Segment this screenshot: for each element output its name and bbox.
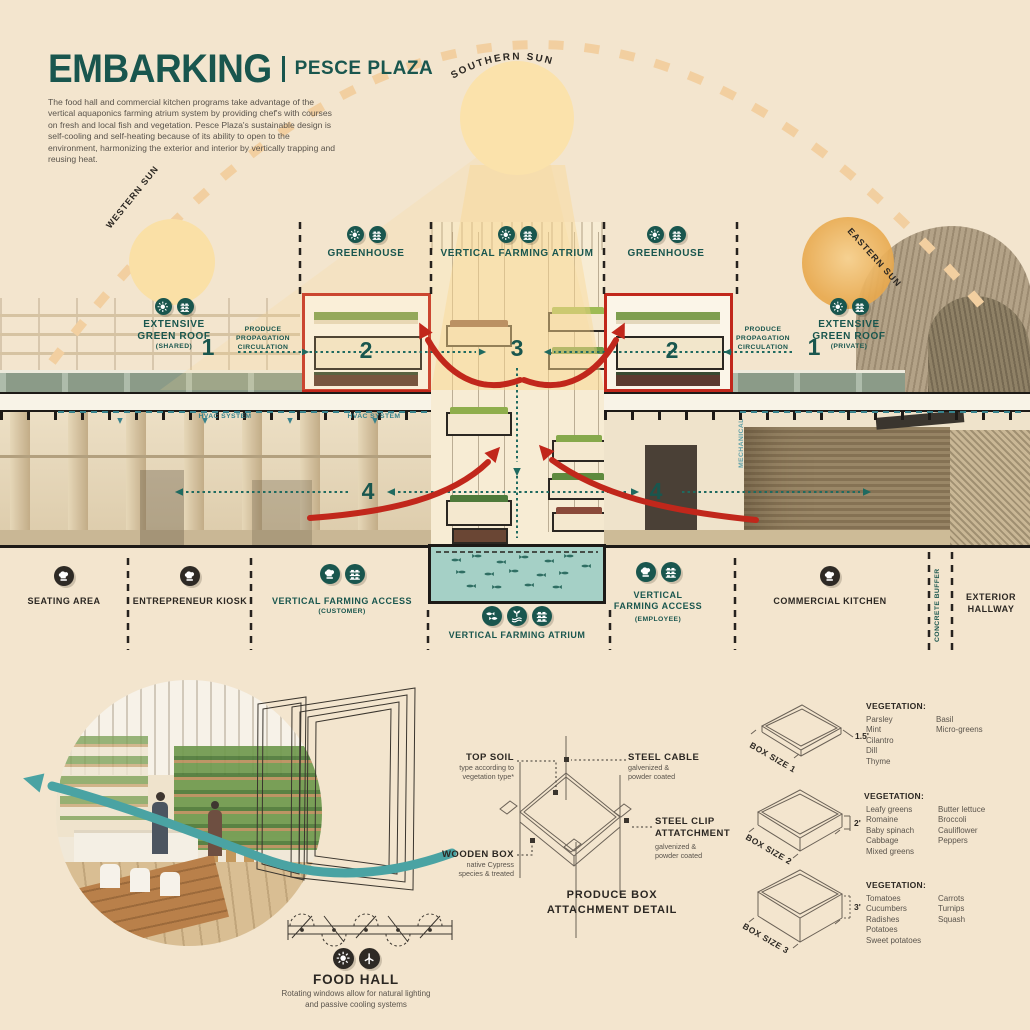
list-item: Basil (936, 715, 983, 725)
list-item: Butter lettuce (938, 805, 985, 815)
box-size-3-col2: CarrotsTurnipsSquash (938, 894, 965, 925)
western-sun-label: WESTERN SUN (104, 164, 161, 231)
list-item: Tomatoes (866, 894, 921, 904)
ground-line-right (602, 545, 1030, 548)
photo-person (208, 810, 222, 856)
page-subtitle: PESCE PLAZA (295, 58, 434, 80)
box-size-1-heading: VEGETATION: (866, 701, 926, 711)
list-item: Turnips (938, 904, 965, 914)
produce-box (446, 500, 512, 526)
page-title: EMBARKING (48, 46, 272, 91)
detail-steel-cable: STEEL CABLE galvenized & powder coated (628, 752, 738, 782)
greenhouse-tray (314, 372, 418, 386)
detail-top-soil: TOP SOIL type according to vegetation ty… (414, 752, 514, 782)
fish-icon (482, 606, 502, 626)
detail-caption: PRODUCE BOX ATTACHMENT DETAIL (547, 888, 677, 918)
photo-person-head (211, 801, 219, 809)
southern-sun-label: SOUTHERN SUN (449, 51, 555, 81)
list-item: Cilantro (866, 736, 894, 746)
callout-1-left: 1 (202, 334, 215, 361)
roof-slab-left (0, 392, 431, 412)
title-divider (282, 56, 285, 82)
produce-box (548, 312, 608, 332)
plants (450, 320, 508, 327)
detail-leader-dots (530, 757, 629, 843)
produce-box (452, 528, 508, 544)
box-size-1-col1: ParsleyMintCilantroDillThyme (866, 715, 894, 767)
box-size-2-dimension: 2' (854, 818, 861, 828)
photo-left-shelves (60, 736, 148, 820)
list-item: Squash (938, 915, 965, 925)
wood-slat-wall (744, 427, 950, 545)
box-size-2-heading: VEGETATION: (864, 791, 924, 801)
photo-person (152, 802, 168, 854)
green-roof-icons-right (819, 298, 879, 315)
sun-plant-icon (498, 226, 515, 243)
southern-sun (460, 61, 574, 175)
detail-wooden-box-title: WOODEN BOX (404, 849, 514, 860)
list-item: Sweet potatoes (866, 936, 921, 946)
list-item: Cauliflower (938, 826, 985, 836)
mezzanine-line (0, 455, 431, 458)
column (184, 408, 204, 545)
employee-access-icons (634, 562, 682, 582)
callout-4-left: 4 (362, 478, 375, 505)
cable (504, 232, 505, 532)
food-hall-description: Rotating windows allow for natural light… (282, 989, 431, 1011)
box-size-3-name: BOX SIZE 3 (741, 921, 791, 956)
greenhouse-shelf (616, 312, 720, 324)
mechanical-label: MECHANICAL (738, 408, 745, 468)
chef-hat-icon (180, 566, 200, 586)
plants (556, 507, 602, 514)
plants (552, 347, 604, 354)
detail-top-soil-title: TOP SOIL (414, 752, 514, 763)
greenhouse-shelf (314, 312, 418, 324)
atrium-bottom-icons (478, 606, 556, 626)
western-sun (129, 219, 215, 305)
list-item: Thyme (866, 757, 894, 767)
zone-label-greenhouse-right: GREENHOUSE (627, 248, 704, 259)
plants (556, 435, 602, 442)
produce-circulation-right: PRODUCE PROPAGATION CIRCULATION (736, 326, 790, 352)
airflow-wave-arrowhead (21, 769, 45, 793)
callout-1-right: 1 (808, 334, 821, 361)
greenhouse-icons-left (336, 226, 396, 243)
list-item: Mixed greens (866, 847, 914, 857)
program-employee-access-sub: (EMPLOYEE) (635, 616, 681, 623)
sun-plant-icon (155, 298, 172, 315)
box-size-1-col2: BasilMicro-greens (936, 715, 983, 736)
greenhouse-icons-right (636, 226, 696, 243)
sun-plant-icon (830, 298, 847, 315)
produce-circulation-left: PRODUCE PROPAGATION CIRCULATION (236, 326, 290, 352)
list-item: Cucumbers (866, 904, 921, 914)
produce-box (548, 478, 608, 500)
column (10, 408, 30, 545)
detail-steel-cable-sub: galvenized & powder coated (628, 763, 738, 782)
zone-label-atrium: VERTICAL FARMING ATRIUM (440, 248, 593, 259)
box-size-2-col1: Leafy greensRomaineBaby spinachCabbageMi… (866, 805, 914, 857)
produce-box (446, 412, 512, 436)
photo-chair (130, 868, 150, 892)
list-item: Potatoes (866, 925, 921, 935)
kiosk-shade (252, 480, 312, 545)
produce-box (552, 512, 606, 532)
green-roof-shared-label: EXTENSIVE GREEN ROOF (137, 319, 210, 342)
ground-line-left (0, 545, 428, 548)
list-item: Dill (866, 746, 894, 756)
green-roof-shared-note: (SHARED) (156, 343, 192, 350)
kiosk-icon (180, 566, 200, 586)
detail-steel-cable-title: STEEL CABLE (628, 752, 738, 763)
wind-icon (359, 948, 380, 969)
detail-top-soil-sub: type according to vegetation type* (414, 763, 514, 782)
farm-rack-icon (345, 564, 365, 584)
fish-pool (428, 544, 606, 604)
chef-hat-icon (820, 566, 840, 586)
food-hall-photo (56, 680, 322, 946)
box-size-2-col2: Butter lettuceBroccoliCauliflowerPeppers (938, 805, 985, 847)
customer-access-icons (318, 564, 366, 584)
box-size-3-heading: VEGETATION: (866, 880, 926, 890)
seating-area-icon (54, 566, 74, 586)
atrium-icons-top (487, 226, 547, 243)
plants (450, 407, 508, 414)
program-seating-area: SEATING AREA (27, 596, 100, 606)
column (68, 408, 88, 545)
plants (450, 495, 508, 502)
box-size-3-col1: TomatoesCucumbersRadishesPotatoesSweet p… (866, 894, 921, 946)
list-item: Broccoli (938, 815, 985, 825)
food-hall-title: FOOD HALL (313, 972, 399, 987)
roof-ticks-right (604, 412, 1030, 420)
kitchen-icon (820, 566, 840, 586)
sun-plant-icon (347, 226, 364, 243)
photo-person-head (156, 792, 165, 801)
produce-box (446, 325, 512, 347)
plants (552, 473, 604, 480)
detail-wooden-box-sub: native Cypress species & treated (404, 860, 514, 879)
green-roof-icons-left (144, 298, 204, 315)
hvac-label-2: HVAC SYSTEM (348, 413, 401, 420)
list-item: Mint (866, 725, 894, 735)
farm-rack-icon (177, 298, 194, 315)
list-item: Micro-greens (936, 725, 983, 735)
list-item: Baby spinach (866, 826, 914, 836)
floor-band (0, 530, 431, 545)
roof-slab-right (604, 392, 1030, 412)
sun-icon (333, 948, 354, 969)
callout-3: 3 (511, 335, 524, 362)
list-item: Leafy greens (866, 805, 914, 815)
box-size-3-dimension: 3' (854, 902, 861, 912)
produce-box (552, 440, 606, 462)
sun-plant-icon (647, 226, 664, 243)
program-concrete-buffer: CONCRETE BUFFER (934, 560, 941, 650)
list-item: Peppers (938, 836, 985, 846)
detail-wooden-box: WOODEN BOX native Cypress species & trea… (404, 849, 514, 879)
list-item: Cabbage (866, 836, 914, 846)
program-employee-access: VERTICAL FARMING ACCESS (614, 590, 702, 612)
program-entrepreneur-kiosk: ENTREPRENEUR KIOSK (133, 596, 248, 606)
cable (478, 232, 479, 532)
project-description: The food hall and commercial kitchen pro… (48, 97, 340, 166)
kiosk-shade (140, 470, 184, 545)
food-hall-icons (330, 948, 382, 969)
farm-rack-icon (669, 226, 686, 243)
box-size-1-name: BOX SIZE 1 (748, 740, 798, 775)
program-customer-access: VERTICAL FARMING ACCESS (272, 596, 412, 606)
chef-hat-icon (54, 566, 74, 586)
zone-label-greenhouse-left: GREENHOUSE (327, 248, 404, 259)
header: EMBARKING PESCE PLAZA (48, 48, 433, 90)
plants (552, 307, 604, 314)
farm-rack-icon (532, 606, 552, 626)
callout-2-left: 2 (360, 337, 373, 364)
list-item: Parsley (866, 715, 894, 725)
program-exterior-hallway: EXTERIOR HALLWAY (966, 592, 1016, 615)
green-roof-private-note: (PRIVATE) (831, 343, 868, 350)
chef-hat-icon (636, 562, 656, 582)
chef-hat-icon (320, 564, 340, 584)
presentation-board: SOUTHERN SUN (0, 0, 1030, 1030)
produce-box (548, 352, 608, 370)
cable (452, 232, 453, 532)
green-roof-private-label: EXTENSIVE GREEN ROOF (812, 319, 885, 342)
farm-rack-icon (661, 562, 681, 582)
photo-chair (160, 872, 180, 896)
greenhouse-tray (616, 372, 720, 386)
program-commercial-kitchen: COMMERCIAL KITCHEN (773, 596, 886, 606)
callout-4-right: 4 (650, 478, 663, 505)
list-item: Carrots (938, 894, 965, 904)
column (358, 408, 378, 545)
exterior-vegetation (950, 430, 1030, 545)
list-item: Radishes (866, 915, 921, 925)
farm-rack-icon (852, 298, 869, 315)
hvac-label-1: HVAC SYSTEM (199, 413, 252, 420)
list-item: Romaine (866, 815, 914, 825)
aquaponics-icon (507, 606, 527, 626)
farm-rack-icon (369, 226, 386, 243)
farm-rack-icon (520, 226, 537, 243)
program-atrium: VERTICAL FARMING ATRIUM (449, 630, 586, 640)
program-customer-access-sub: (CUSTOMER) (318, 608, 365, 615)
callout-2-right: 2 (666, 337, 679, 364)
photo-chair (100, 864, 120, 888)
